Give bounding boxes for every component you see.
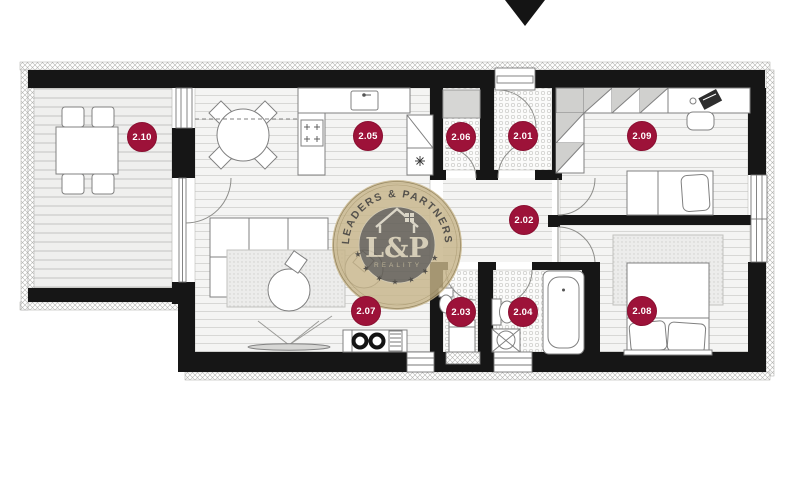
floor-plan-drawing: LEADERS & PARTNERS ★ ★ ★ ★ ★ ★ ★ L&P REA…	[0, 0, 800, 500]
floorplan-canvas: LEADERS & PARTNERS ★ ★ ★ ★ ★ ★ ★ L&P REA…	[0, 0, 800, 500]
desk	[668, 88, 750, 113]
room-badge-2-03: 2.03	[446, 297, 476, 327]
right-window	[751, 175, 767, 262]
desk-chair	[687, 112, 714, 130]
bottom-window-living	[407, 352, 434, 372]
logo-subtitle: REALITY	[374, 262, 422, 269]
wc-sill	[446, 352, 480, 364]
shower	[492, 329, 520, 352]
kitchen-dining-set	[209, 101, 277, 169]
room-badge-label: 2.06	[451, 132, 470, 143]
watermark-logo: LEADERS & PARTNERS ★ ★ ★ ★ ★ ★ ★ L&P REA…	[332, 180, 462, 310]
room-badge-label: 2.01	[513, 131, 532, 142]
room-badge-2-04: 2.04	[508, 297, 538, 327]
room-badge-label: 2.07	[356, 306, 375, 317]
stove	[301, 120, 323, 146]
kitchen-sink	[351, 91, 378, 110]
room-badge-2-09: 2.09	[627, 121, 657, 151]
bottom-window-bath	[494, 352, 532, 372]
room-badge-label: 2.08	[632, 306, 651, 317]
storage-shelf	[443, 90, 480, 118]
room-badge-label: 2.02	[514, 215, 533, 226]
room-badge-2-10: 2.10	[127, 122, 157, 152]
room-badge-2-02: 2.02	[509, 205, 539, 235]
terrace-glass-door	[179, 178, 186, 282]
room-badge-2-08: 2.08	[627, 296, 657, 326]
room-badge-label: 2.04	[513, 307, 532, 318]
boiler	[407, 148, 433, 175]
room-badge-label: 2.03	[451, 307, 470, 318]
room-badge-label: 2.09	[632, 131, 651, 142]
fridge	[407, 115, 433, 148]
bathtub	[543, 271, 584, 354]
room-badge-label: 2.10	[132, 132, 151, 143]
entrance-marker-icon	[505, 0, 545, 26]
terrace-kitchen-window	[176, 88, 192, 128]
room-badge-label: 2.05	[358, 131, 377, 142]
room-badge-2-01: 2.01	[508, 121, 538, 151]
room-badge-2-07: 2.07	[351, 296, 381, 326]
room-badge-2-05: 2.05	[353, 121, 383, 151]
single-bed	[627, 171, 713, 215]
entrance-door	[495, 68, 535, 90]
room-badge-2-06: 2.06	[446, 122, 476, 152]
logo-monogram: L&P	[365, 233, 429, 264]
